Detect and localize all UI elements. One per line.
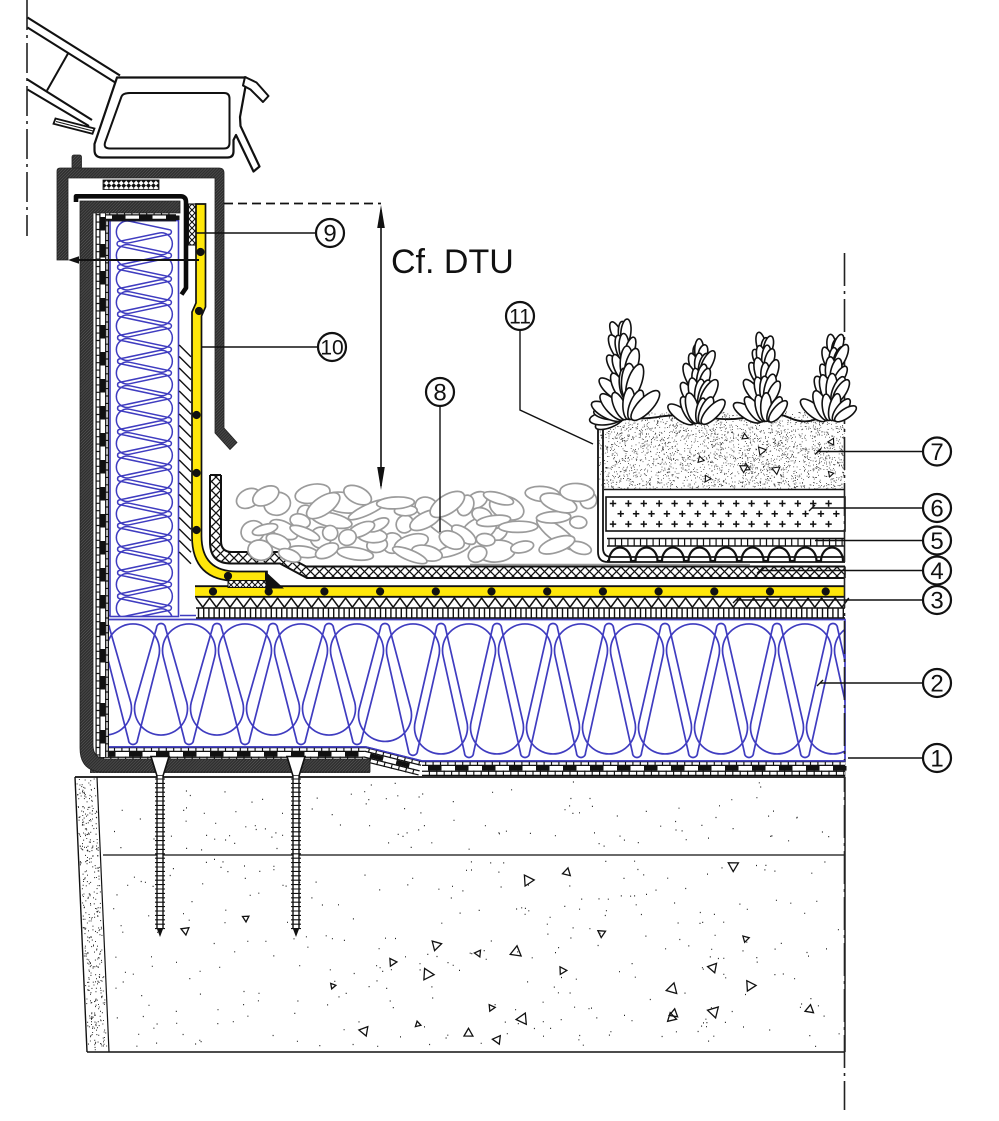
svg-text:1: 1 [930,746,943,773]
svg-text:6: 6 [930,496,943,523]
svg-text:4: 4 [930,558,943,585]
svg-text:2: 2 [930,671,943,698]
svg-text:7: 7 [930,439,943,466]
svg-text:Cf. DTU: Cf. DTU [391,243,514,281]
svg-text:11: 11 [509,306,531,329]
svg-text:9: 9 [323,221,336,248]
svg-text:3: 3 [930,588,943,615]
svg-text:8: 8 [433,380,446,407]
svg-text:10: 10 [320,337,343,360]
svg-text:5: 5 [930,528,943,555]
